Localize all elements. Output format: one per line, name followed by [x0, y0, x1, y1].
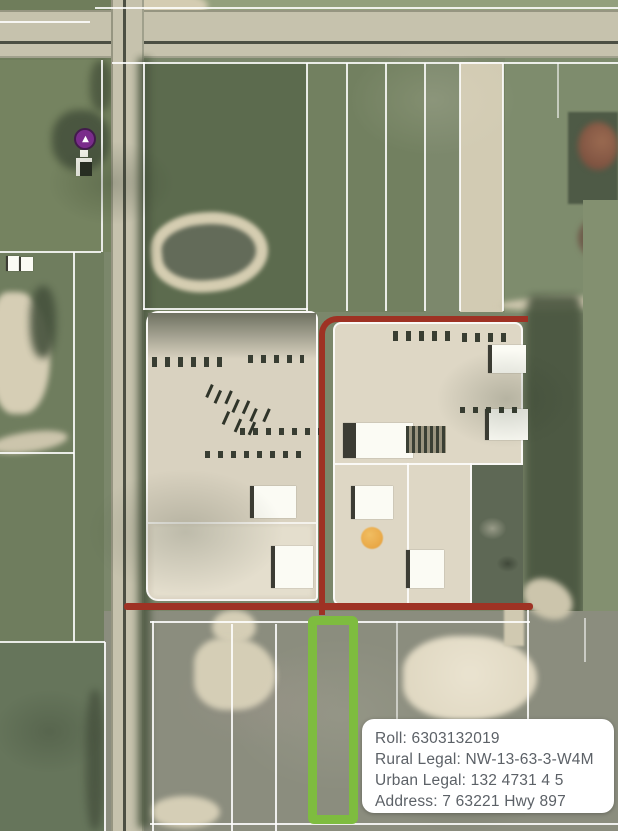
- equipment-row: [205, 451, 309, 458]
- sand-pit: [403, 636, 537, 720]
- parcel-line: [0, 452, 74, 454]
- parcel-line: [584, 618, 586, 662]
- yard-seam-line: [148, 522, 316, 524]
- yard-tree-band: [148, 313, 316, 359]
- parcel-line: [275, 624, 277, 831]
- equipment-row: [248, 355, 304, 363]
- parcel-line: [0, 641, 105, 643]
- strip-line: [557, 63, 559, 118]
- equipment-row: [240, 428, 326, 435]
- tree-cluster: [86, 690, 104, 830]
- warehouse-building: [250, 486, 296, 518]
- parcel-line: [73, 252, 75, 642]
- tree-cluster: [30, 286, 56, 358]
- orange-poi-marker[interactable]: [361, 527, 383, 549]
- dirt-strip-parcel: [460, 62, 503, 312]
- urban-legal: Urban Legal: 132 4731 4 5: [375, 770, 614, 791]
- listed-lot-outline-green: [308, 616, 358, 824]
- road-horizontal-edge-line: [0, 41, 618, 44]
- strip-line: [424, 63, 426, 311]
- dirt-area: [194, 638, 276, 710]
- parcel-line: [0, 251, 101, 253]
- subject-property-outline-red-bottom: [124, 603, 533, 610]
- strip-line: [502, 63, 504, 311]
- farm-building: [6, 256, 19, 271]
- rural-legal: Rural Legal: NW-13-63-3-W4M: [375, 749, 614, 770]
- strip-line: [143, 62, 145, 310]
- parcel-line: [231, 624, 233, 831]
- satellite-map-canvas[interactable]: Roll: 6303132019 Rural Legal: NW-13-63-3…: [0, 0, 618, 831]
- warehouse-building: [271, 546, 313, 588]
- purple-poi-marker[interactable]: [74, 128, 96, 150]
- subject-property-outline-red: [319, 316, 528, 615]
- light-strip-parcel: [425, 62, 459, 312]
- road-horizontal: [0, 10, 618, 58]
- parcel-line: [143, 308, 308, 310]
- strip-line: [346, 63, 348, 311]
- parcel-line: [104, 642, 106, 831]
- parcel-line: [95, 7, 618, 9]
- parcel-line: [101, 60, 103, 252]
- strip-line: [306, 63, 308, 311]
- farm-building: [19, 257, 33, 271]
- vehicle-marks: [80, 150, 88, 157]
- strip-line: [459, 63, 461, 311]
- parcel-line: [152, 621, 154, 831]
- marker-glyph: [81, 135, 90, 143]
- road-vertical-edge-line: [123, 0, 126, 831]
- parcel-line: [0, 21, 90, 23]
- property-info-card: Roll: 6303132019 Rural Legal: NW-13-63-3…: [362, 719, 614, 813]
- brown-pond: [578, 122, 618, 170]
- equipment-row: [152, 357, 228, 367]
- address: Address: 7 63221 Hwy 897: [375, 791, 614, 812]
- vehicle-marks: [76, 158, 92, 176]
- roll-number: Roll: 6303132019: [375, 728, 614, 749]
- parcel-line: [396, 621, 398, 721]
- strip-line: [385, 63, 387, 311]
- parcel-line: [112, 62, 618, 64]
- field-east: [583, 200, 618, 640]
- parcel-line: [150, 823, 618, 825]
